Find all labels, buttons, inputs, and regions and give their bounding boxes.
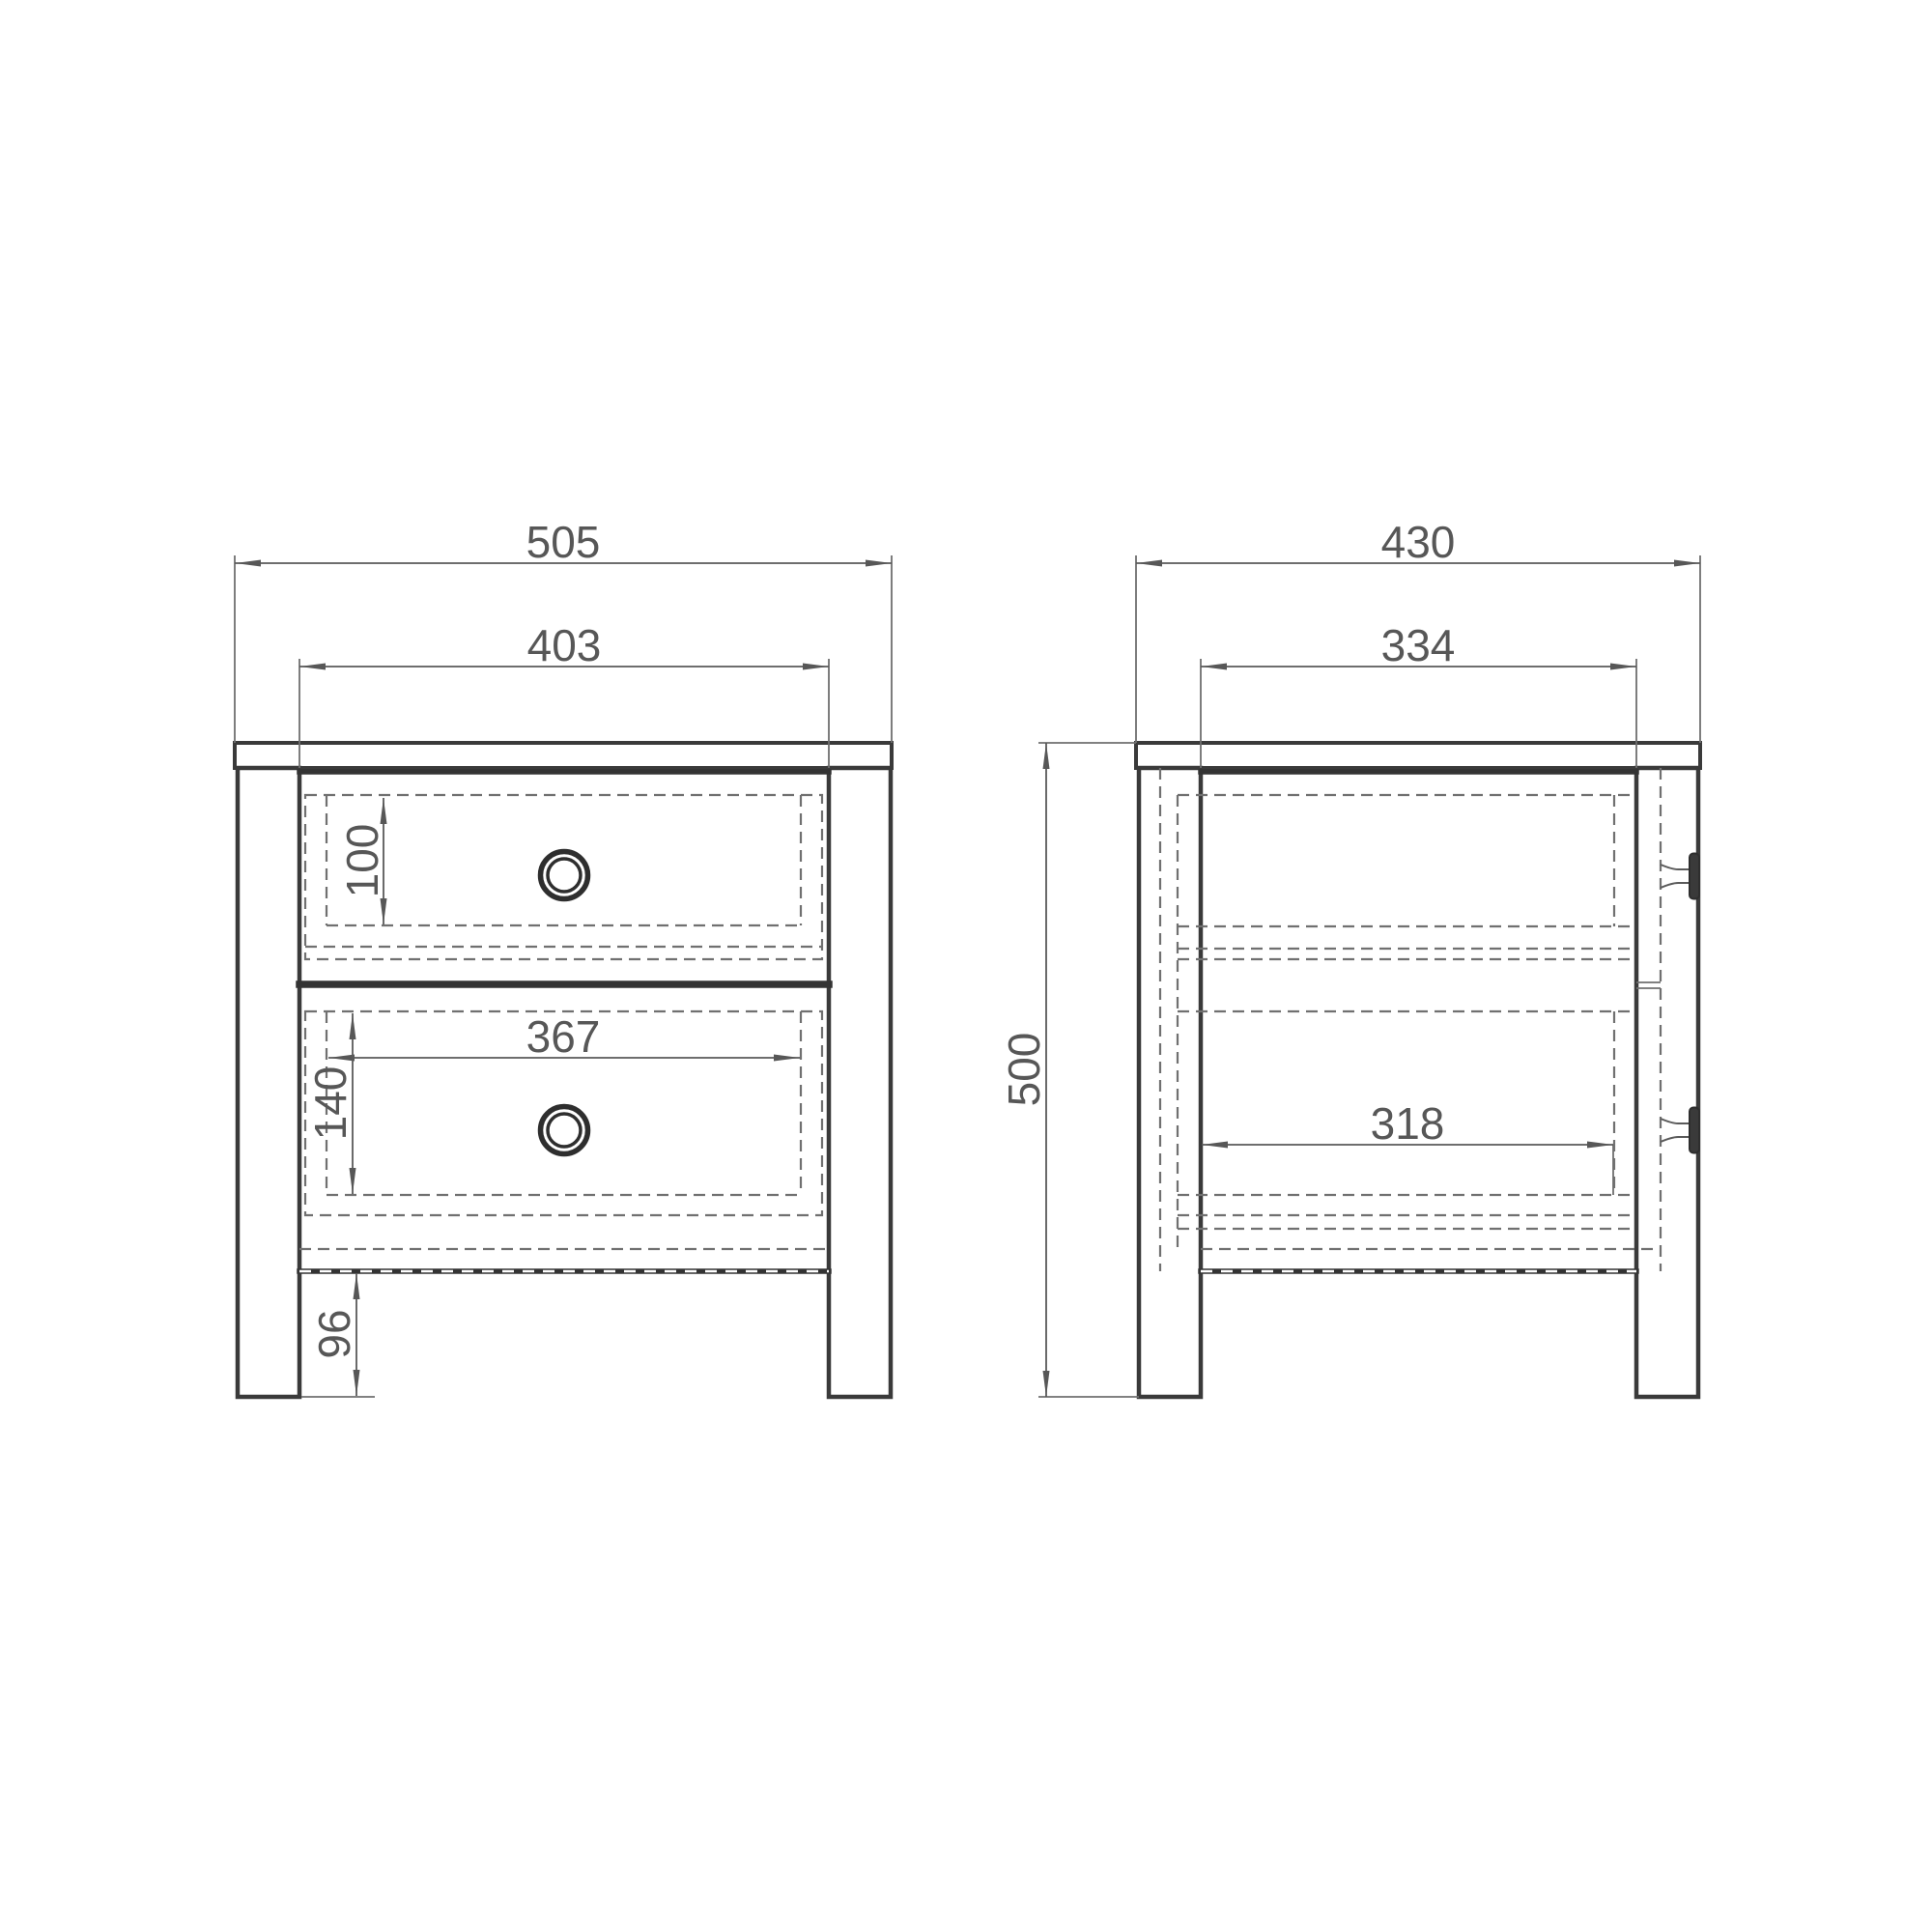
dim-side-drawer-depth-label: 318 xyxy=(1371,1098,1445,1149)
side-view: 430 334 500 318 xyxy=(999,517,1700,1397)
side-hidden-lines xyxy=(1160,768,1661,1271)
dim-front-overall-width-label: 505 xyxy=(526,517,601,567)
dim-top-drawer-height: 100 xyxy=(337,798,387,924)
technical-drawing-page: 505 403 100 367 140 96 xyxy=(0,0,1932,1932)
dim-side-overall-height: 500 xyxy=(999,743,1139,1397)
side-top-slab xyxy=(1136,743,1700,768)
dim-top-drawer-height-label: 100 xyxy=(337,824,387,898)
dim-bottom-drawer-height-label: 140 xyxy=(305,1066,355,1141)
side-cabinet-outline xyxy=(1136,743,1700,1397)
side-back-leg xyxy=(1139,768,1201,1397)
dim-side-overall-depth-label: 430 xyxy=(1381,517,1456,567)
dim-leg-height-label: 96 xyxy=(309,1309,359,1358)
bedside-table-drawing: 505 403 100 367 140 96 xyxy=(0,0,1932,1932)
front-top-drawer-knob xyxy=(541,852,588,899)
front-bottom-drawer-knob xyxy=(541,1107,588,1154)
dim-bottom-drawer-width: 367 xyxy=(328,1011,800,1062)
front-right-leg xyxy=(829,768,891,1397)
dim-bottom-drawer-width-label: 367 xyxy=(526,1011,601,1062)
dim-bottom-drawer-height: 140 xyxy=(305,1013,355,1194)
dim-front-inner-width-label: 403 xyxy=(527,620,602,670)
dim-leg-height: 96 xyxy=(301,1273,375,1397)
front-top-slab xyxy=(235,743,892,768)
front-left-leg xyxy=(238,768,299,1397)
dim-side-inner-depth-label: 334 xyxy=(1381,620,1456,670)
front-view: 505 403 100 367 140 96 xyxy=(235,517,892,1397)
dim-side-drawer-depth: 318 xyxy=(1202,1098,1613,1195)
dim-side-overall-height-label: 500 xyxy=(999,1033,1049,1107)
